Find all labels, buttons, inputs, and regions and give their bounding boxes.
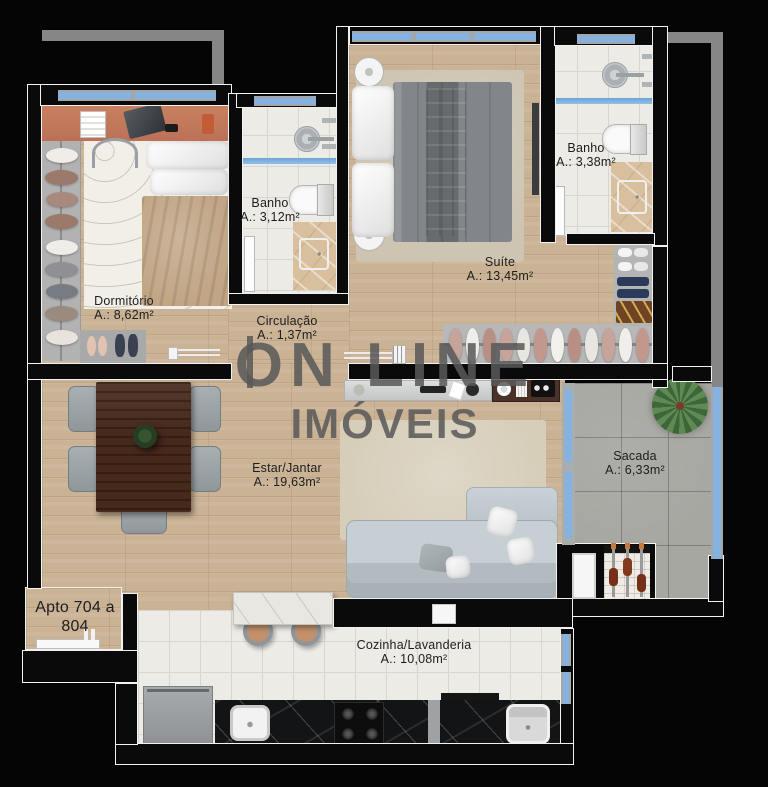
shower-shelf — [322, 118, 336, 123]
window — [254, 96, 316, 106]
clothes-item — [46, 330, 78, 345]
bathroom-door — [244, 236, 255, 292]
dorm-bed-blanket — [142, 196, 232, 306]
watermark-line1: ON LINE — [150, 330, 620, 401]
book-stack — [80, 111, 106, 138]
wall — [115, 683, 138, 745]
room-name: Cozinha/Lavanderia — [339, 639, 489, 653]
room-label-dormitorio: Dormitório A.: 8,62m² — [88, 295, 160, 322]
clothes-item — [45, 214, 78, 229]
room-area: A.: 3,12m² — [234, 211, 306, 225]
room-name: Circulação — [249, 315, 325, 329]
room-name: Banho — [234, 197, 306, 211]
room-label-estar: Estar/Jantar A.: 19,63m² — [246, 462, 328, 489]
window — [58, 90, 216, 101]
skewer-handle — [625, 543, 630, 549]
belt-box — [616, 301, 652, 323]
shower-shelf — [322, 144, 336, 149]
sneaker — [617, 289, 649, 298]
wall — [708, 555, 724, 602]
sneaker — [115, 334, 125, 357]
shower-arm — [308, 137, 334, 141]
phone — [165, 124, 178, 132]
wall — [556, 598, 724, 617]
wall — [540, 26, 556, 243]
skewer-meat — [637, 574, 646, 592]
room-area: A.: 3,38m² — [547, 156, 625, 170]
wall — [22, 650, 138, 683]
kitchen-window — [561, 634, 571, 666]
window-mullion — [412, 31, 416, 42]
shower-arm — [616, 73, 644, 77]
sneaker — [618, 248, 632, 257]
sneaker — [617, 277, 649, 286]
stove-cooktop — [334, 702, 384, 744]
clothes-item — [45, 306, 78, 321]
wall — [652, 26, 668, 246]
clothes-item — [46, 192, 78, 207]
sofa-pillow — [506, 536, 536, 566]
wall — [27, 84, 42, 589]
suite-bed-tuft-band — [426, 88, 466, 236]
kitchen-island — [233, 592, 333, 625]
sneaker — [128, 334, 138, 357]
vanity-sink — [617, 180, 647, 214]
room-label-banho-2: Banho A.: 3,38m² — [547, 142, 625, 169]
clothes-item — [46, 148, 78, 163]
unit-label: Apto 704 a 804 — [28, 598, 122, 636]
nightstand-lamp — [354, 57, 384, 87]
fridge-handle — [147, 689, 209, 692]
dining-chair — [189, 446, 221, 492]
suite-bed-pillow — [352, 163, 394, 237]
wall — [672, 366, 712, 382]
bathroom-door — [555, 186, 565, 236]
room-label-suite: Suíte A.: 13,45m² — [461, 256, 539, 283]
clothes-item — [46, 284, 78, 299]
room-area: A.: 19,63m² — [246, 476, 328, 490]
dorm-bed-pillow — [146, 141, 230, 169]
wall — [115, 743, 574, 765]
clothes-item — [46, 240, 78, 255]
window — [577, 34, 635, 44]
room-name: Banho — [547, 142, 625, 156]
shower-glass-partition — [238, 158, 336, 164]
desk-accessory — [202, 114, 214, 134]
room-area: A.: 8,62m² — [88, 309, 160, 323]
room-area: A.: 13,45m² — [461, 270, 539, 284]
room-label-cozinha: Cozinha/Lavanderia A.: 10,08m² — [339, 639, 489, 666]
range-hood — [441, 693, 499, 700]
sliding-glass-door-pane — [565, 472, 572, 538]
suite-bed-pillow — [352, 86, 394, 160]
skewer-handle — [639, 543, 644, 549]
palm-trunk — [676, 402, 684, 410]
hanging-clothes — [619, 328, 632, 362]
wall — [336, 26, 349, 305]
dorm-bed-pillow — [150, 169, 228, 195]
room-name: Estar/Jantar — [246, 462, 328, 476]
hanging-clothes — [636, 328, 649, 362]
kitchen-sink — [230, 705, 270, 741]
entry-door — [36, 639, 100, 649]
wall — [566, 233, 655, 245]
room-area: A.: 10,08m² — [339, 653, 489, 667]
watermark-logo-o-bar — [247, 336, 253, 388]
service-door — [572, 553, 596, 599]
kitchen-window — [561, 672, 571, 704]
exterior-ledge — [711, 32, 723, 388]
exterior-ledge — [42, 30, 224, 41]
counter-divider — [428, 700, 440, 745]
tv-panel — [532, 103, 539, 195]
toilet-tank — [630, 124, 647, 155]
room-area: A.: 6,33m² — [597, 464, 673, 478]
balcony-glass-railing — [711, 387, 723, 559]
sneaker — [618, 262, 632, 271]
room-name: Suíte — [461, 256, 539, 270]
flat-shoe — [98, 336, 107, 356]
shower-glass-partition — [553, 98, 654, 104]
watermark-line2: IMÓVEIS — [150, 400, 620, 448]
fridge — [143, 686, 213, 745]
sneaker — [634, 262, 648, 271]
room-name: Sacada — [597, 450, 673, 464]
wire-chair — [92, 138, 138, 168]
unit-label-line2: 804 — [28, 617, 122, 636]
vanity-sink — [299, 238, 329, 270]
sneaker — [634, 248, 648, 257]
clothes-item — [45, 262, 78, 277]
unit-label-line1: Apto 704 a — [28, 598, 122, 617]
skewer-handle — [611, 543, 616, 549]
room-label-banho-1: Banho A.: 3,12m² — [234, 197, 306, 224]
flat-shoe — [87, 336, 96, 356]
exterior-ledge — [212, 30, 224, 90]
room-name: Dormitório — [88, 295, 160, 309]
room-label-sacada: Sacada A.: 6,33m² — [597, 450, 673, 477]
laundry-tank — [506, 704, 550, 744]
skewer-meat — [623, 558, 632, 576]
wall — [228, 293, 349, 305]
sofa-pillow — [445, 555, 471, 579]
clothes-item — [45, 170, 78, 185]
window-mullion — [131, 90, 135, 101]
skewer-meat — [609, 568, 618, 586]
window — [352, 31, 536, 42]
floor-plan: Dormitório A.: 8,62m² Banho A.: 3,12m² C… — [0, 0, 768, 787]
window-mullion — [470, 31, 474, 42]
kitchen-door — [432, 604, 456, 624]
toilet-tank — [317, 184, 334, 216]
